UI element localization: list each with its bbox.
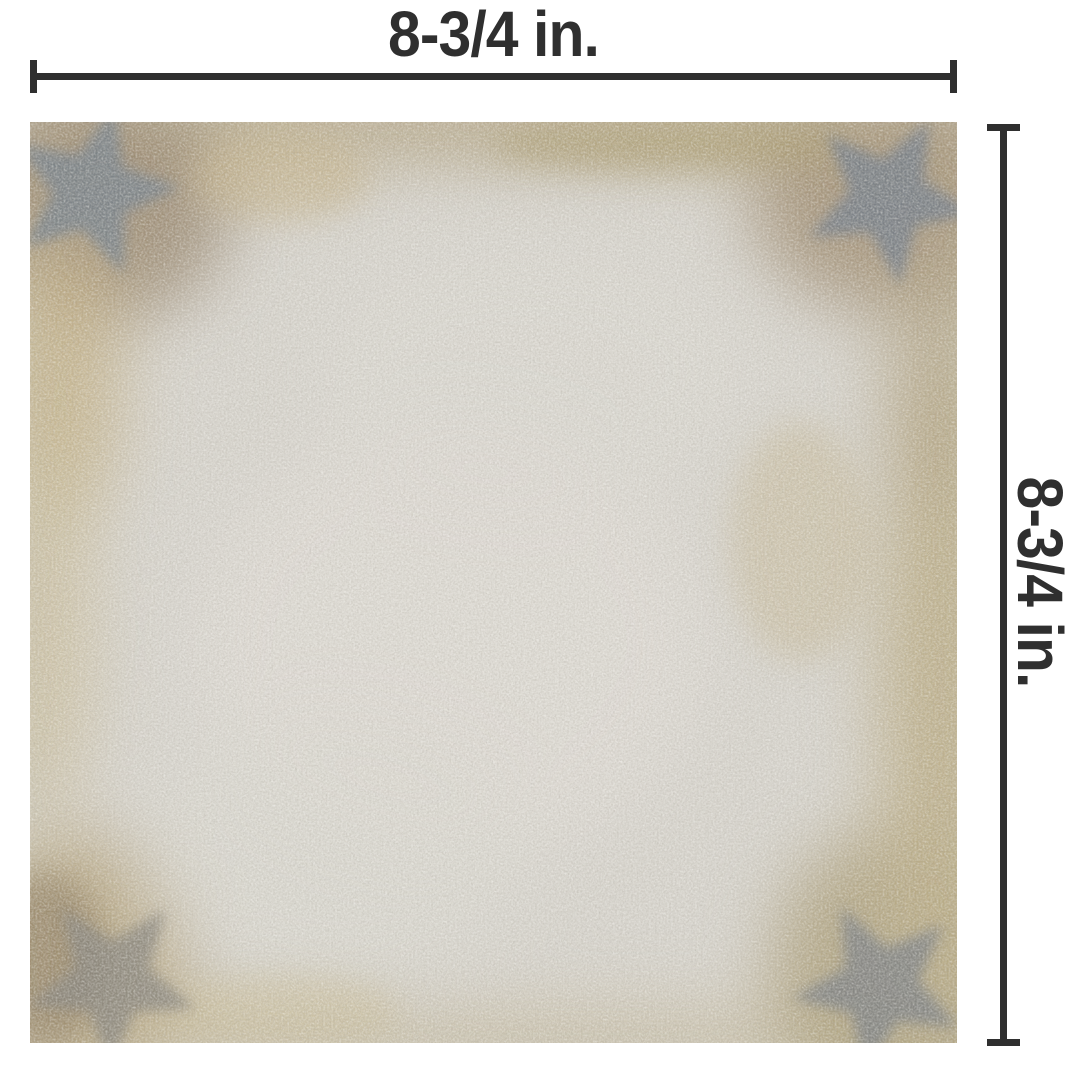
- height-dimension-bottom-tick: [987, 1039, 1020, 1046]
- height-dimension-label: 8-3/4 in.: [1008, 472, 1072, 693]
- width-dimension-label: 8-3/4 in.: [67, 2, 920, 66]
- width-dimension-right-tick: [950, 60, 957, 93]
- tile-product-image: [30, 122, 957, 1043]
- tile-grain-light: [30, 122, 957, 1043]
- tile-texture: [30, 122, 957, 1043]
- width-dimension-left-tick: [30, 60, 37, 93]
- width-dimension-line: [30, 73, 957, 80]
- height-dimension-top-tick: [987, 124, 1020, 131]
- product-dimension-diagram: 8-3/4 in.: [0, 0, 1080, 1080]
